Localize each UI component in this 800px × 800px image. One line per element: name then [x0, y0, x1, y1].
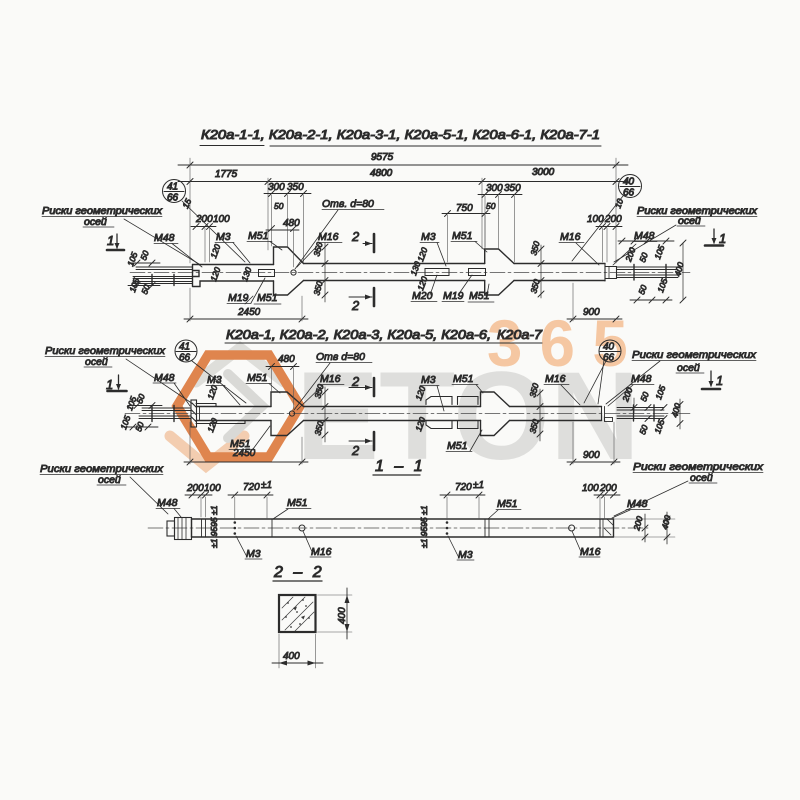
svg-text:осей: осей — [690, 472, 713, 484]
svg-text:105: 105 — [653, 384, 667, 401]
svg-text:100: 100 — [204, 483, 221, 494]
svg-text:2 – 2: 2 – 2 — [273, 564, 325, 581]
svg-text:105: 105 — [655, 277, 669, 294]
svg-text:2: 2 — [351, 443, 360, 458]
svg-text:М51: М51 — [453, 373, 473, 385]
svg-text:М16: М16 — [580, 546, 601, 558]
svg-text:М16: М16 — [545, 373, 566, 385]
svg-text:М48: М48 — [157, 497, 178, 509]
svg-text:66: 66 — [603, 353, 615, 364]
svg-text:±1 9595 ±1: ±1 9595 ±1 — [209, 505, 219, 548]
svg-text:М3: М3 — [421, 374, 436, 386]
svg-text:осей: осей — [85, 356, 108, 368]
svg-text:40: 40 — [603, 342, 615, 353]
svg-text:осей: осей — [84, 216, 107, 228]
svg-text:М51: М51 — [469, 290, 489, 302]
svg-text:66: 66 — [167, 193, 179, 204]
svg-text:2: 2 — [351, 229, 360, 244]
svg-text:400: 400 — [659, 514, 672, 531]
svg-text:105: 105 — [118, 414, 132, 431]
svg-text:2: 2 — [351, 374, 360, 389]
svg-text:120: 120 — [415, 246, 429, 263]
svg-text:400: 400 — [283, 651, 300, 662]
svg-text:720: 720 — [455, 482, 472, 493]
svg-text:480: 480 — [278, 354, 295, 365]
svg-text:М48: М48 — [154, 372, 175, 384]
svg-text:480: 480 — [283, 218, 300, 229]
svg-text:2450: 2450 — [237, 307, 261, 318]
svg-text:9575: 9575 — [371, 152, 394, 163]
svg-text:900: 900 — [583, 450, 600, 461]
svg-text:50: 50 — [636, 283, 649, 296]
svg-text:50: 50 — [133, 420, 146, 433]
svg-text:300: 300 — [268, 182, 285, 193]
svg-text:50: 50 — [637, 251, 650, 264]
svg-text:М3: М3 — [246, 548, 261, 560]
svg-text:1: 1 — [719, 231, 726, 246]
svg-text:М19: М19 — [228, 292, 249, 304]
svg-text:50: 50 — [486, 201, 496, 211]
svg-text:3000: 3000 — [532, 167, 555, 178]
svg-text:350: 350 — [504, 183, 521, 194]
svg-text:10: 10 — [613, 197, 626, 210]
svg-text:М48: М48 — [154, 232, 175, 244]
svg-text:2450: 2450 — [232, 448, 256, 459]
svg-text:М20: М20 — [412, 290, 433, 302]
svg-text:М51: М51 — [247, 372, 267, 384]
svg-text:±1: ±1 — [261, 480, 272, 491]
svg-text:120: 120 — [205, 417, 219, 434]
svg-text:50: 50 — [134, 392, 147, 405]
svg-text:200: 200 — [623, 246, 638, 264]
svg-text:М16: М16 — [560, 231, 581, 243]
svg-text:М16: М16 — [311, 546, 332, 558]
svg-text:М51: М51 — [497, 498, 517, 510]
svg-text:М51: М51 — [257, 292, 277, 304]
svg-text:±1 9595 ±1: ±1 9595 ±1 — [419, 505, 429, 548]
svg-text:К20а-7: К20а-7 — [497, 328, 543, 342]
svg-text:66: 66 — [179, 353, 191, 364]
svg-text:400: 400 — [337, 607, 348, 624]
svg-text:100: 100 — [213, 214, 230, 225]
svg-text:200: 200 — [195, 214, 213, 225]
svg-text:1775: 1775 — [215, 169, 238, 180]
svg-text:900: 900 — [583, 307, 600, 318]
svg-text:±1: ±1 — [473, 480, 484, 491]
svg-text:41: 41 — [179, 342, 190, 353]
svg-text:М3: М3 — [458, 549, 473, 561]
svg-text:130: 130 — [408, 260, 422, 277]
svg-text:2: 2 — [351, 298, 360, 313]
svg-text:50: 50 — [138, 249, 151, 262]
svg-text:М3: М3 — [421, 231, 436, 243]
svg-text:1 – 1: 1 – 1 — [375, 458, 426, 475]
svg-text:200: 200 — [599, 483, 617, 494]
svg-text:120: 120 — [205, 384, 219, 401]
svg-text:1: 1 — [107, 233, 114, 248]
svg-text:осей: осей — [677, 362, 700, 374]
svg-text:41: 41 — [167, 182, 178, 193]
svg-text:40: 40 — [623, 177, 635, 188]
svg-text:50: 50 — [274, 201, 284, 211]
svg-text:Отв. d=80: Отв. d=80 — [322, 198, 374, 210]
svg-text:105: 105 — [125, 251, 139, 268]
svg-text:105: 105 — [652, 244, 666, 261]
svg-text:М48: М48 — [634, 230, 655, 242]
svg-text:М51: М51 — [447, 440, 467, 452]
svg-text:100: 100 — [587, 214, 604, 225]
svg-text:120: 120 — [208, 266, 222, 283]
svg-text:4800: 4800 — [370, 168, 393, 179]
svg-text:130: 130 — [239, 266, 253, 283]
svg-text:К20а-1-1, К20а-2-1, К20а-3-1,: К20а-1-1, К20а-2-1, К20а-3-1, К20а-5-1, … — [201, 128, 600, 142]
svg-text:Риски геометрических: Риски геометрических — [632, 349, 757, 361]
svg-text:осей: осей — [98, 474, 121, 486]
svg-text:М51: М51 — [452, 230, 472, 242]
svg-text:Отв d=80: Отв d=80 — [316, 351, 365, 363]
svg-text:М51: М51 — [287, 497, 307, 509]
svg-text:120: 120 — [208, 243, 222, 260]
svg-text:1: 1 — [716, 373, 723, 388]
svg-text:720: 720 — [243, 482, 260, 493]
svg-text:М51: М51 — [248, 230, 268, 242]
svg-text:400: 400 — [672, 261, 685, 278]
svg-text:К20а-1, К20а-2, К20а-3, К20: К20а-1, К20а-2, К20а-3, К20а-5, К20а-6, — [226, 328, 491, 342]
svg-text:100: 100 — [582, 483, 599, 494]
svg-text:50: 50 — [139, 283, 152, 296]
svg-text:750: 750 — [456, 203, 473, 214]
svg-text:350: 350 — [528, 240, 541, 257]
svg-text:М3: М3 — [216, 231, 231, 243]
svg-text:М48: М48 — [631, 373, 652, 385]
svg-text:66: 66 — [623, 188, 635, 199]
svg-text:М16: М16 — [320, 373, 341, 385]
svg-text:50: 50 — [637, 423, 650, 436]
svg-text:М16: М16 — [318, 231, 339, 243]
svg-text:50: 50 — [638, 390, 651, 403]
